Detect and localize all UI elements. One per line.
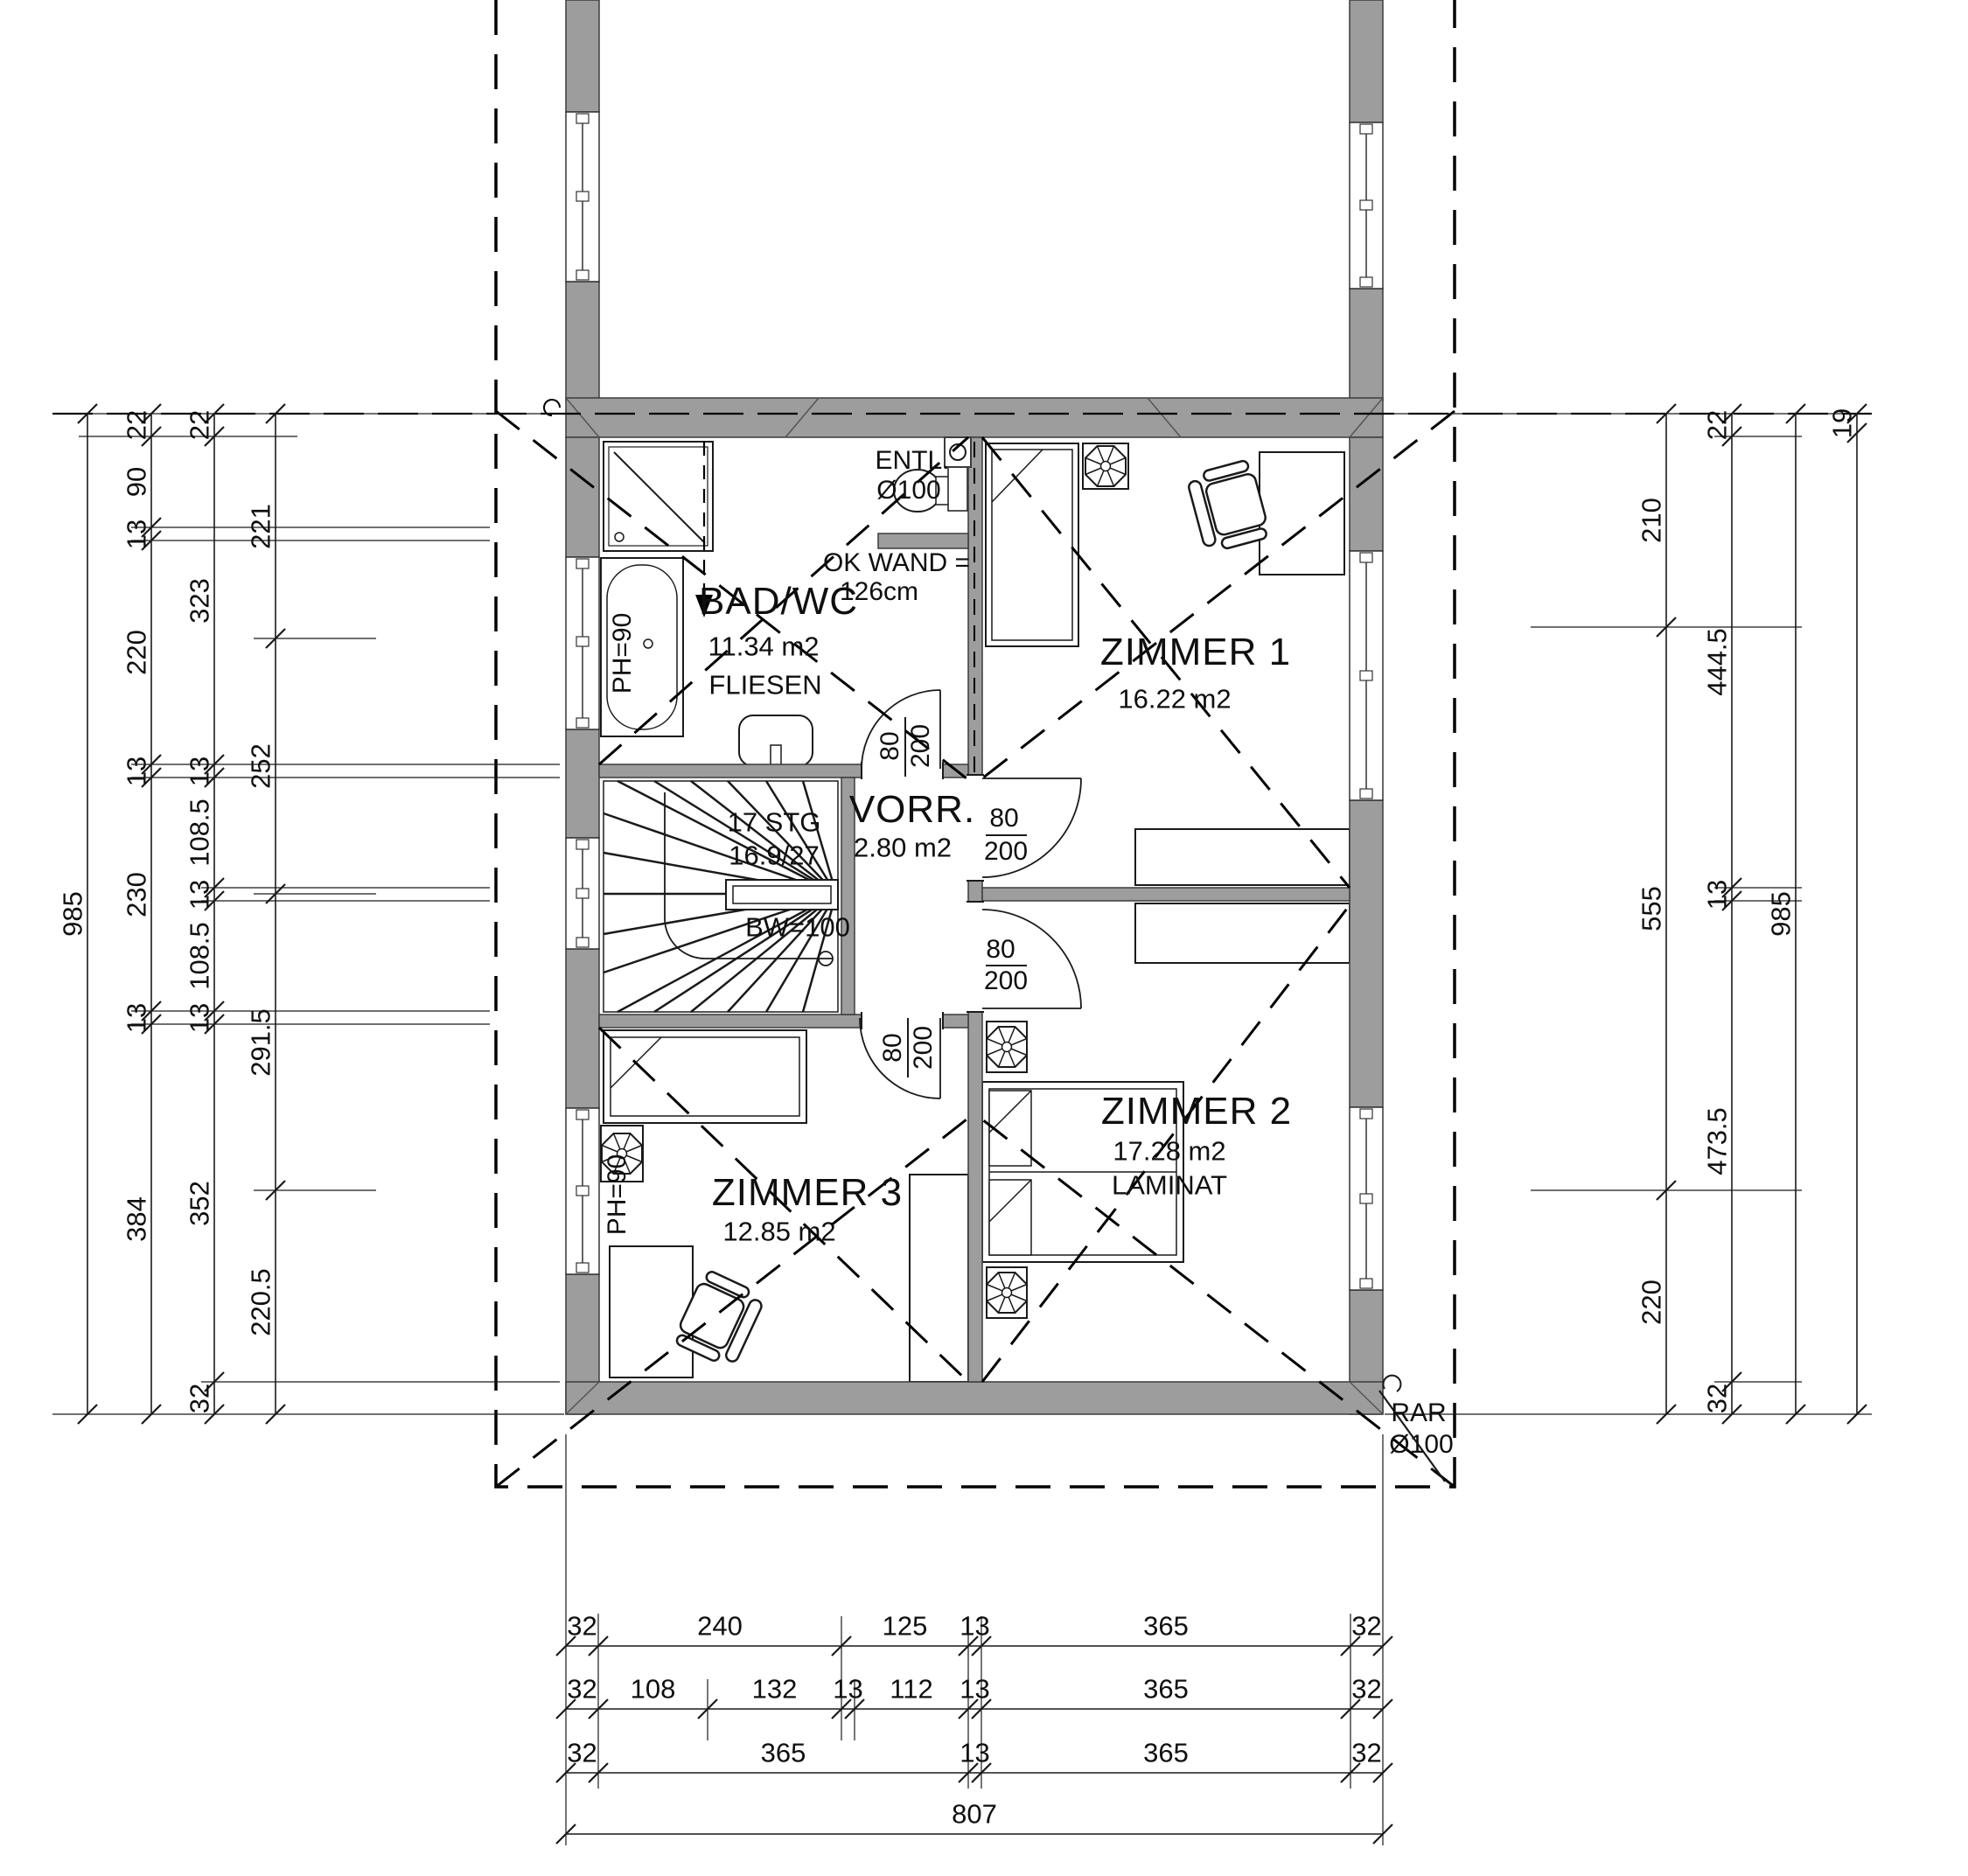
rar-label: RAR	[1391, 1400, 1446, 1426]
door-z2-height: 200	[984, 968, 1028, 994]
dim-label: 365	[761, 1740, 806, 1767]
dim-label: 13	[186, 756, 213, 785]
dim-label: 13	[123, 1002, 150, 1032]
dim-label: 32	[1351, 1740, 1381, 1767]
room-area-z2: 17.28 m2	[1113, 1138, 1225, 1165]
room-area-vorr: 2.80 m2	[854, 834, 952, 861]
dim-label: 108.5	[186, 922, 213, 990]
room-area-bad: 11.34 m2	[708, 633, 820, 660]
dim-label: 473.5	[1704, 1107, 1731, 1175]
vent-diameter: Ø100	[876, 478, 940, 504]
dim-label: 22	[123, 410, 150, 440]
dim-label: 108.5	[186, 799, 213, 867]
dim-label: 32	[1704, 1383, 1731, 1412]
dim-label: 13	[1704, 879, 1731, 909]
door-z1-width: 80	[989, 805, 1018, 832]
dim-label: 125	[883, 1613, 928, 1640]
parapet-bath-label: PH=90	[610, 613, 636, 694]
dim-label: 221	[248, 504, 275, 549]
dim-label: 252	[248, 743, 275, 789]
dim-label: 985	[1768, 891, 1795, 937]
dim-label: 108	[631, 1676, 676, 1703]
dim-label: 32	[186, 1383, 213, 1412]
dim-label: 13	[960, 1676, 989, 1703]
dim-label: 13	[960, 1740, 989, 1767]
dim-label: 32	[567, 1613, 597, 1640]
dim-label: 985	[59, 891, 87, 937]
room-area-z3: 12.85 m2	[722, 1218, 835, 1245]
dim-label: 365	[1143, 1740, 1189, 1767]
dim-label: 19	[1829, 408, 1856, 438]
parapet-z3-label: PH=90	[604, 1154, 631, 1236]
rar-diameter: Ø100	[1389, 1432, 1453, 1458]
room-area-z1: 16.22 m2	[1118, 686, 1231, 713]
vent-label: ENTL.	[875, 448, 949, 474]
dim-label: 13	[960, 1613, 989, 1640]
dim-label: 13	[186, 1002, 213, 1032]
door-bad-height: 200	[908, 724, 934, 768]
dim-label: 352	[186, 1181, 213, 1226]
dim-label: 291.5	[248, 1008, 275, 1077]
dim-label: 220.5	[248, 1268, 275, 1336]
dim-label: 112	[890, 1676, 932, 1703]
stair-steps-label: 17 STG	[728, 809, 821, 836]
dim-label: 444.5	[1704, 628, 1731, 696]
dim-label: 210	[1638, 498, 1665, 543]
dim-label: 384	[123, 1196, 150, 1242]
dim-label: 32	[1351, 1613, 1381, 1640]
dim-label: 807	[952, 1801, 997, 1828]
room-name-z1: ZIMMER 1	[1100, 633, 1291, 672]
door-bad-width: 80	[877, 731, 904, 760]
stair-rise-run-label: 16.9/27	[729, 842, 819, 869]
dim-label: 90	[123, 467, 150, 497]
dim-label: 220	[1638, 1280, 1665, 1325]
stair-width-label: BW=100	[745, 914, 850, 941]
wall-top-height: 126cm	[840, 579, 918, 605]
dim-label: 220	[123, 630, 150, 675]
dim-label: 13	[186, 879, 213, 909]
door-z1-height: 200	[984, 839, 1028, 865]
room-floor-z2: LAMINAT	[1112, 1172, 1227, 1199]
dim-label: 365	[1143, 1613, 1189, 1640]
dim-label: 13	[123, 756, 150, 785]
room-name-bad: BAD/WC	[699, 582, 858, 621]
dim-label: 240	[697, 1613, 743, 1640]
door-z3-width: 80	[880, 1033, 906, 1062]
dim-label: 22	[186, 410, 213, 440]
dim-label: 555	[1638, 886, 1665, 931]
room-name-vorr: VORR.	[849, 791, 975, 829]
room-name-z3: ZIMMER 3	[712, 1174, 903, 1212]
dim-label: 13	[833, 1676, 862, 1703]
dim-label: 32	[567, 1676, 597, 1703]
dim-label: 32	[1351, 1676, 1381, 1703]
wall-top-label: OK WAND =	[823, 550, 970, 576]
dim-label: 13	[123, 519, 150, 548]
door-z2-width: 80	[986, 937, 1015, 963]
text-labels: BAD/WC 11.34 m2 FLIESEN ZIMMER 1 16.22 m…	[0, 0, 1968, 1876]
floor-plan-page: BAD/WC 11.34 m2 FLIESEN ZIMMER 1 16.22 m…	[0, 0, 1968, 1876]
dim-label: 365	[1143, 1676, 1189, 1703]
dim-label: 32	[567, 1740, 597, 1767]
dim-label: 230	[123, 872, 150, 917]
dim-label: 22	[1704, 410, 1731, 440]
door-z3-height: 200	[911, 1026, 937, 1070]
room-floor-bad: FLIESEN	[708, 672, 821, 699]
dim-label: 323	[186, 578, 213, 624]
room-name-z2: ZIMMER 2	[1101, 1092, 1292, 1131]
dim-label: 132	[752, 1676, 798, 1703]
